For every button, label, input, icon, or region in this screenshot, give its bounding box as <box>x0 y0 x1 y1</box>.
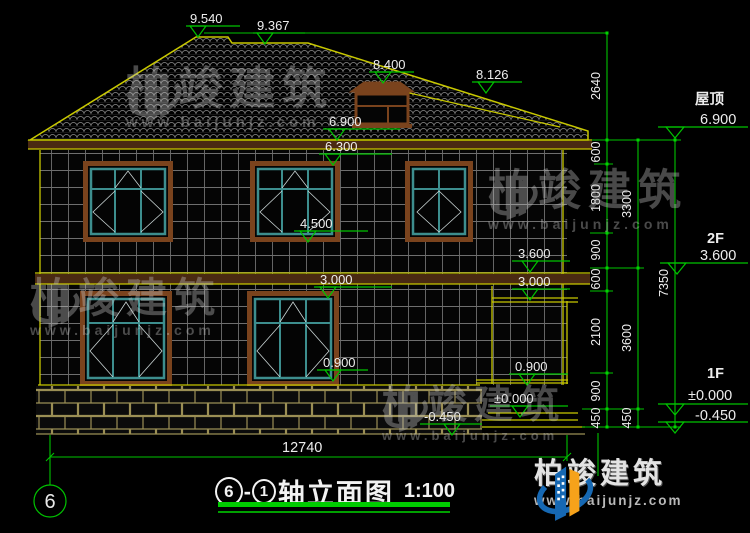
level-8400: 8.400 <box>373 57 406 72</box>
title-underline <box>218 502 450 507</box>
level-0000: ±0.000 <box>494 391 534 406</box>
brick-plinth <box>36 386 482 434</box>
dim-2100: 2100 <box>589 318 603 346</box>
dim-900b: 900 <box>589 381 603 402</box>
dim-1800: 1800 <box>589 184 603 212</box>
dim-total-width: 12740 <box>282 440 322 456</box>
level-6900: 6.900 <box>329 114 362 129</box>
drawing-scale: 1:100 <box>404 480 455 503</box>
label-roof: 屋顶 <box>695 91 724 108</box>
label-2f: 2F <box>707 231 724 247</box>
label-1f: 1F <box>707 366 724 382</box>
label-1f-level: ±0.000 <box>688 388 732 404</box>
level-0900-right: 0.900 <box>515 359 548 374</box>
axis-bubble-label: 6 <box>44 491 55 513</box>
dim-600b: 600 <box>589 269 603 290</box>
dim-2640: 2640 <box>589 72 603 100</box>
axis-end-number: 1 <box>260 483 268 500</box>
level-neg450: -0.450 <box>424 409 461 424</box>
dim-900a: 900 <box>589 240 603 261</box>
dim-7350: 7350 <box>657 269 671 297</box>
dim-450b: 450 <box>620 408 634 429</box>
label-2f-level: 3.600 <box>700 248 736 264</box>
level-3000-left: 3.000 <box>320 272 353 287</box>
level-3000-right: 3.000 <box>518 274 551 289</box>
axis-separator: - <box>244 479 251 505</box>
dim-600a: 600 <box>589 142 603 163</box>
label-roof-level: 6.900 <box>700 112 736 128</box>
roof <box>30 37 588 140</box>
axis-circle-end: 1 <box>252 479 276 504</box>
level-8126: 8.126 <box>476 67 509 82</box>
storey-labels: 屋顶 6.900 2F 3.600 1F ±0.000 -0.450 <box>658 91 748 433</box>
level-0900-left: 0.900 <box>323 355 356 370</box>
dim-450a: 450 <box>589 408 603 429</box>
floor-band <box>35 273 590 284</box>
eaves-band <box>28 140 592 149</box>
company-logo: 柏竣建筑 www.baijunjz.com <box>534 460 683 508</box>
axis-start-number: 6 <box>224 482 233 502</box>
chain-ticks <box>606 32 677 429</box>
level-3600: 3.600 <box>518 246 551 261</box>
company-logo-icon <box>534 460 596 522</box>
level-4500: 4.500 <box>300 216 333 231</box>
window-1f-left <box>83 294 170 384</box>
level-9540: 9.540 <box>190 11 223 26</box>
dim-3300: 3300 <box>620 190 634 218</box>
title-underline-thin <box>218 511 450 513</box>
building-elevation <box>28 37 592 434</box>
dim-3600: 3600 <box>620 324 634 352</box>
cad-drawing: 9.540 9.367 8.400 8.126 6.900 6.300 4.50… <box>0 0 750 533</box>
elevation-drawing-canvas: 9.540 9.367 8.400 8.126 6.900 6.300 4.50… <box>0 0 750 533</box>
window-2f-left <box>86 164 171 240</box>
level-6300: 6.300 <box>325 139 358 154</box>
window-2f-right <box>408 164 471 240</box>
level-9367: 9.367 <box>257 18 290 33</box>
